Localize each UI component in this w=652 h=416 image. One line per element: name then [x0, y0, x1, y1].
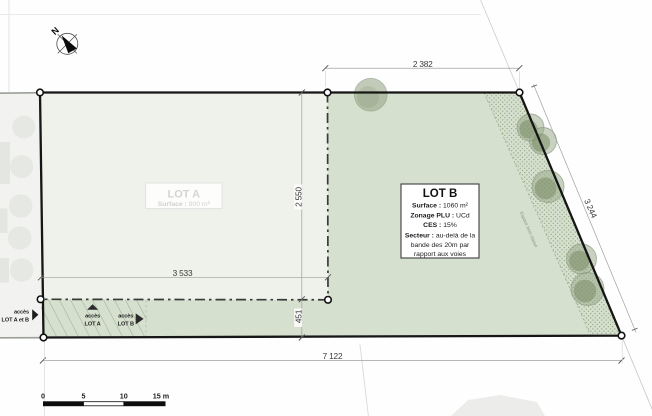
svg-text:LOT B: LOT B: [118, 322, 134, 328]
svg-text:3 533: 3 533: [173, 268, 193, 278]
svg-text:10: 10: [120, 392, 128, 401]
svg-text:5: 5: [82, 392, 86, 401]
svg-text:Surface : 900 m²: Surface : 900 m²: [158, 201, 211, 208]
svg-text:15 m: 15 m: [153, 392, 169, 401]
svg-text:2 550: 2 550: [293, 187, 303, 207]
svg-text:LOT A et B: LOT A et B: [2, 318, 30, 324]
svg-text:LOT A: LOT A: [168, 189, 201, 201]
svg-text:451: 451: [293, 309, 303, 323]
svg-text:Zonage PLU : UCd: Zonage PLU : UCd: [410, 212, 470, 219]
svg-text:rapport aux voies: rapport aux voies: [414, 251, 467, 258]
svg-text:bande des 20m par: bande des 20m par: [411, 242, 470, 249]
svg-text:0: 0: [41, 392, 45, 401]
svg-text:accès: accès: [14, 310, 29, 316]
svg-text:LOT A: LOT A: [85, 322, 101, 328]
svg-text:LOT B: LOT B: [423, 188, 458, 200]
svg-text:Surface : 1060 m²: Surface : 1060 m²: [412, 202, 469, 209]
svg-text:CES : 15%: CES : 15%: [423, 222, 457, 229]
svg-text:accès: accès: [85, 314, 100, 320]
svg-text:7 122: 7 122: [323, 351, 343, 361]
svg-text:2 382: 2 382: [413, 59, 433, 69]
svg-text:accès: accès: [118, 314, 133, 320]
svg-text:Secteur : au-delà de la: Secteur : au-delà de la: [405, 232, 476, 239]
